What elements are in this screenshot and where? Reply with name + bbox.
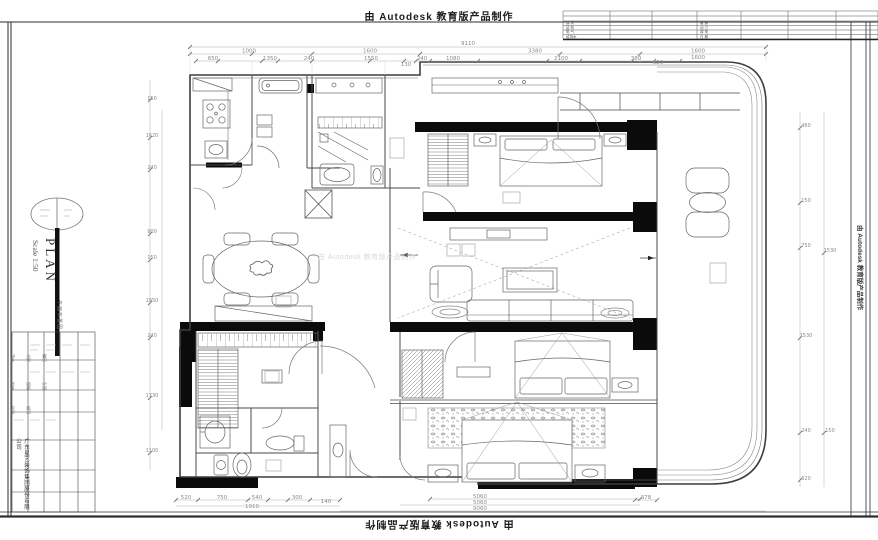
dim-label: 240 xyxy=(147,165,157,171)
dim-label: 540 xyxy=(252,495,263,501)
dim-label: 150 xyxy=(147,96,157,102)
armchair-icon xyxy=(430,266,472,302)
sofa-icon xyxy=(467,300,633,321)
autodesk-watermark-bottom: 由 Autodesk 教育版产品制作 xyxy=(0,518,878,533)
bathroom-main xyxy=(316,78,404,185)
bed-icon xyxy=(500,136,602,186)
title-field: 审核 xyxy=(10,382,16,390)
discipline-label: 日 期 xyxy=(700,35,708,39)
washer-icon xyxy=(214,455,228,475)
master-bedroom xyxy=(428,402,605,482)
dim-label: 2100 xyxy=(554,56,568,62)
plan-scale: Scale 1:50 xyxy=(31,240,40,271)
toilet-icon xyxy=(371,166,383,184)
kitchen xyxy=(193,78,232,160)
dim-label: 9060 xyxy=(473,506,487,512)
wardrobe-icon xyxy=(402,350,443,398)
dining-table-icon xyxy=(212,241,310,297)
dim-label: 380 xyxy=(631,56,642,62)
duct-shaft xyxy=(305,190,332,218)
dim-label: 240 xyxy=(304,56,315,62)
drawing-sheet: 9110 1000 1600 3380 1600 1600 650 1350 2… xyxy=(0,0,878,540)
discipline-label: 给排水 xyxy=(566,35,577,39)
dim-label: 520 xyxy=(181,495,192,501)
top-strip xyxy=(432,78,558,93)
dim-label: 620 xyxy=(653,60,664,66)
utility-room xyxy=(257,78,302,137)
dim-label: 240 xyxy=(801,428,811,434)
dim-label: 1620 xyxy=(146,133,159,139)
dim-label: 1910 xyxy=(245,504,259,510)
dim-label: 3380 xyxy=(528,49,542,55)
title-field: 审定 xyxy=(10,354,16,362)
dim-label: 130 xyxy=(401,62,412,68)
autodesk-watermark-top: 由 Autodesk 教育版产品制作 xyxy=(0,8,878,23)
autodesk-watermark-right: 由 Autodesk 教育版产品制作 xyxy=(686,225,866,239)
living-room xyxy=(398,228,656,321)
title-field: 设计 xyxy=(26,354,32,362)
bedroom-1 xyxy=(428,134,626,203)
shower-icon xyxy=(318,132,368,162)
dim-label: 1100 xyxy=(146,448,159,454)
shoe-cabinet-icon xyxy=(330,425,346,477)
dining-chairs xyxy=(203,233,319,305)
bathtub-icon xyxy=(259,78,302,93)
dim-label: 1080 xyxy=(446,56,460,62)
dining-room xyxy=(203,233,319,321)
small-tub-icon xyxy=(320,164,354,185)
dim-label: 1000 xyxy=(242,49,256,55)
dim-label: 1730 xyxy=(146,393,159,399)
dim-label: 900 xyxy=(147,229,157,235)
floor-plan-canvas: 9110 1000 1600 3380 1600 1600 650 1350 2… xyxy=(0,0,878,540)
balcony xyxy=(657,67,757,475)
dim-label: 140 xyxy=(321,499,332,505)
dim-label: 480 xyxy=(801,123,811,129)
rug-icon xyxy=(432,306,629,318)
toilet-icon xyxy=(266,436,304,451)
dim-label: 1350 xyxy=(263,56,277,62)
dim-label: 378 xyxy=(641,495,652,501)
dim-label: 750 xyxy=(217,495,228,501)
dim-label: 1600 xyxy=(363,49,377,55)
bench-icon xyxy=(457,367,490,377)
title-field: 校对 xyxy=(10,406,16,414)
dim-label: 300 xyxy=(292,495,303,501)
stove-icon xyxy=(203,100,230,128)
study xyxy=(198,333,318,428)
dim-label: 1950 xyxy=(146,298,159,304)
company-name: 广东星艺装饰集团股份有限公司 xyxy=(14,438,30,512)
dim-label: 1600 xyxy=(691,49,705,55)
dim-label: 240 xyxy=(417,56,428,62)
dim-label: 150 xyxy=(825,428,835,434)
dim-label: 1530 xyxy=(824,248,837,254)
dim-label: 150 xyxy=(147,255,157,261)
title-field: 比例 xyxy=(26,406,32,414)
bidet-icon xyxy=(233,453,251,477)
title-field: 日期 xyxy=(42,354,48,362)
plan-subtitle: 平面布置图 xyxy=(56,300,63,330)
title-field: 制图 xyxy=(26,382,32,390)
dim-label: 150 xyxy=(801,198,811,204)
cabinet-row-icon xyxy=(198,333,318,347)
title-field: 图号 xyxy=(42,382,48,390)
dim-label: 9110 xyxy=(461,41,475,47)
dim-label: 650 xyxy=(208,56,219,62)
dim-label: 750 xyxy=(801,243,811,249)
bedroom-2 xyxy=(402,333,638,398)
dim-label: 620 xyxy=(801,476,811,482)
autodesk-watermark-left: 由 Autodesk 教育版产品制作 xyxy=(0,319,104,331)
dim-label: 1600 xyxy=(691,55,705,61)
autodesk-watermark-center: 由 Autodesk 教育版产品制作 xyxy=(318,252,416,262)
coffee-table-icon xyxy=(503,268,557,292)
dim-label: 1550 xyxy=(364,56,378,62)
dim-label: 1530 xyxy=(800,333,813,339)
dim-label: 240 xyxy=(147,333,157,339)
bed-icon xyxy=(515,333,610,398)
plan-title: PLAN xyxy=(42,238,58,284)
kitchen-sink-icon xyxy=(205,141,227,158)
